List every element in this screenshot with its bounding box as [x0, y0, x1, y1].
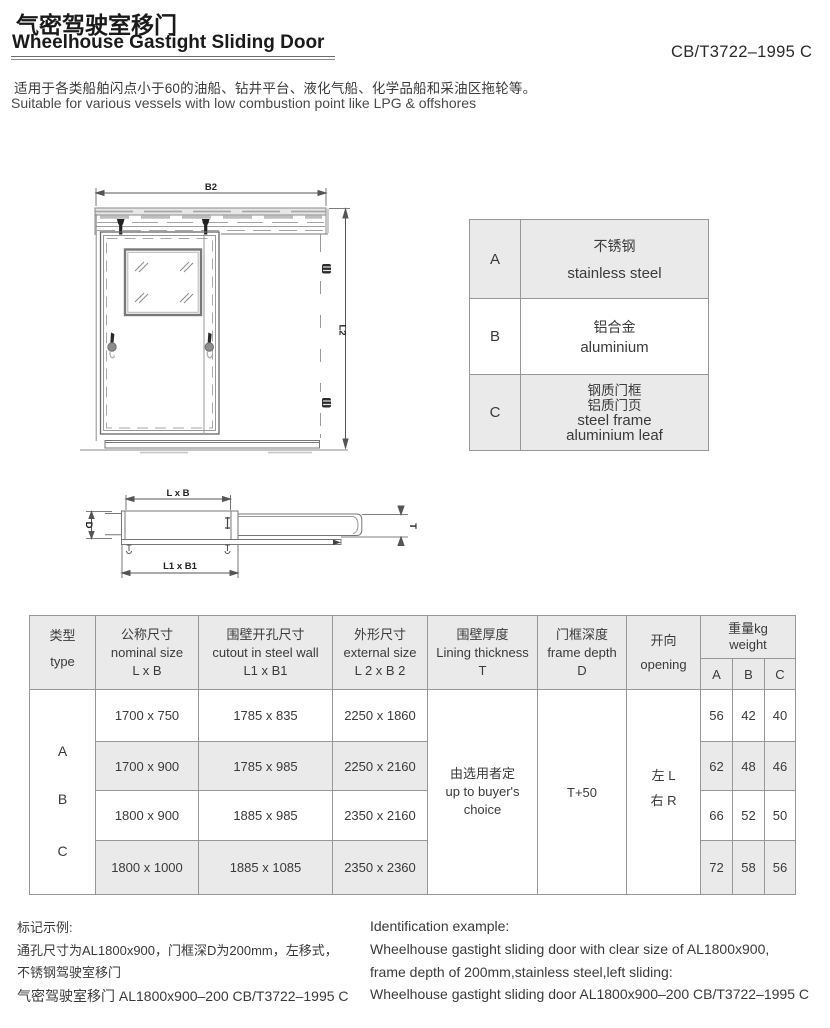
svg-text:L x B: L x B — [166, 488, 189, 499]
svg-text:L2: L2 — [337, 324, 348, 335]
svg-text:B2: B2 — [205, 182, 217, 193]
svg-text:L1 x B1: L1 x B1 — [163, 561, 198, 572]
svg-text:D: D — [83, 522, 94, 529]
svg-text:T: T — [407, 523, 418, 529]
